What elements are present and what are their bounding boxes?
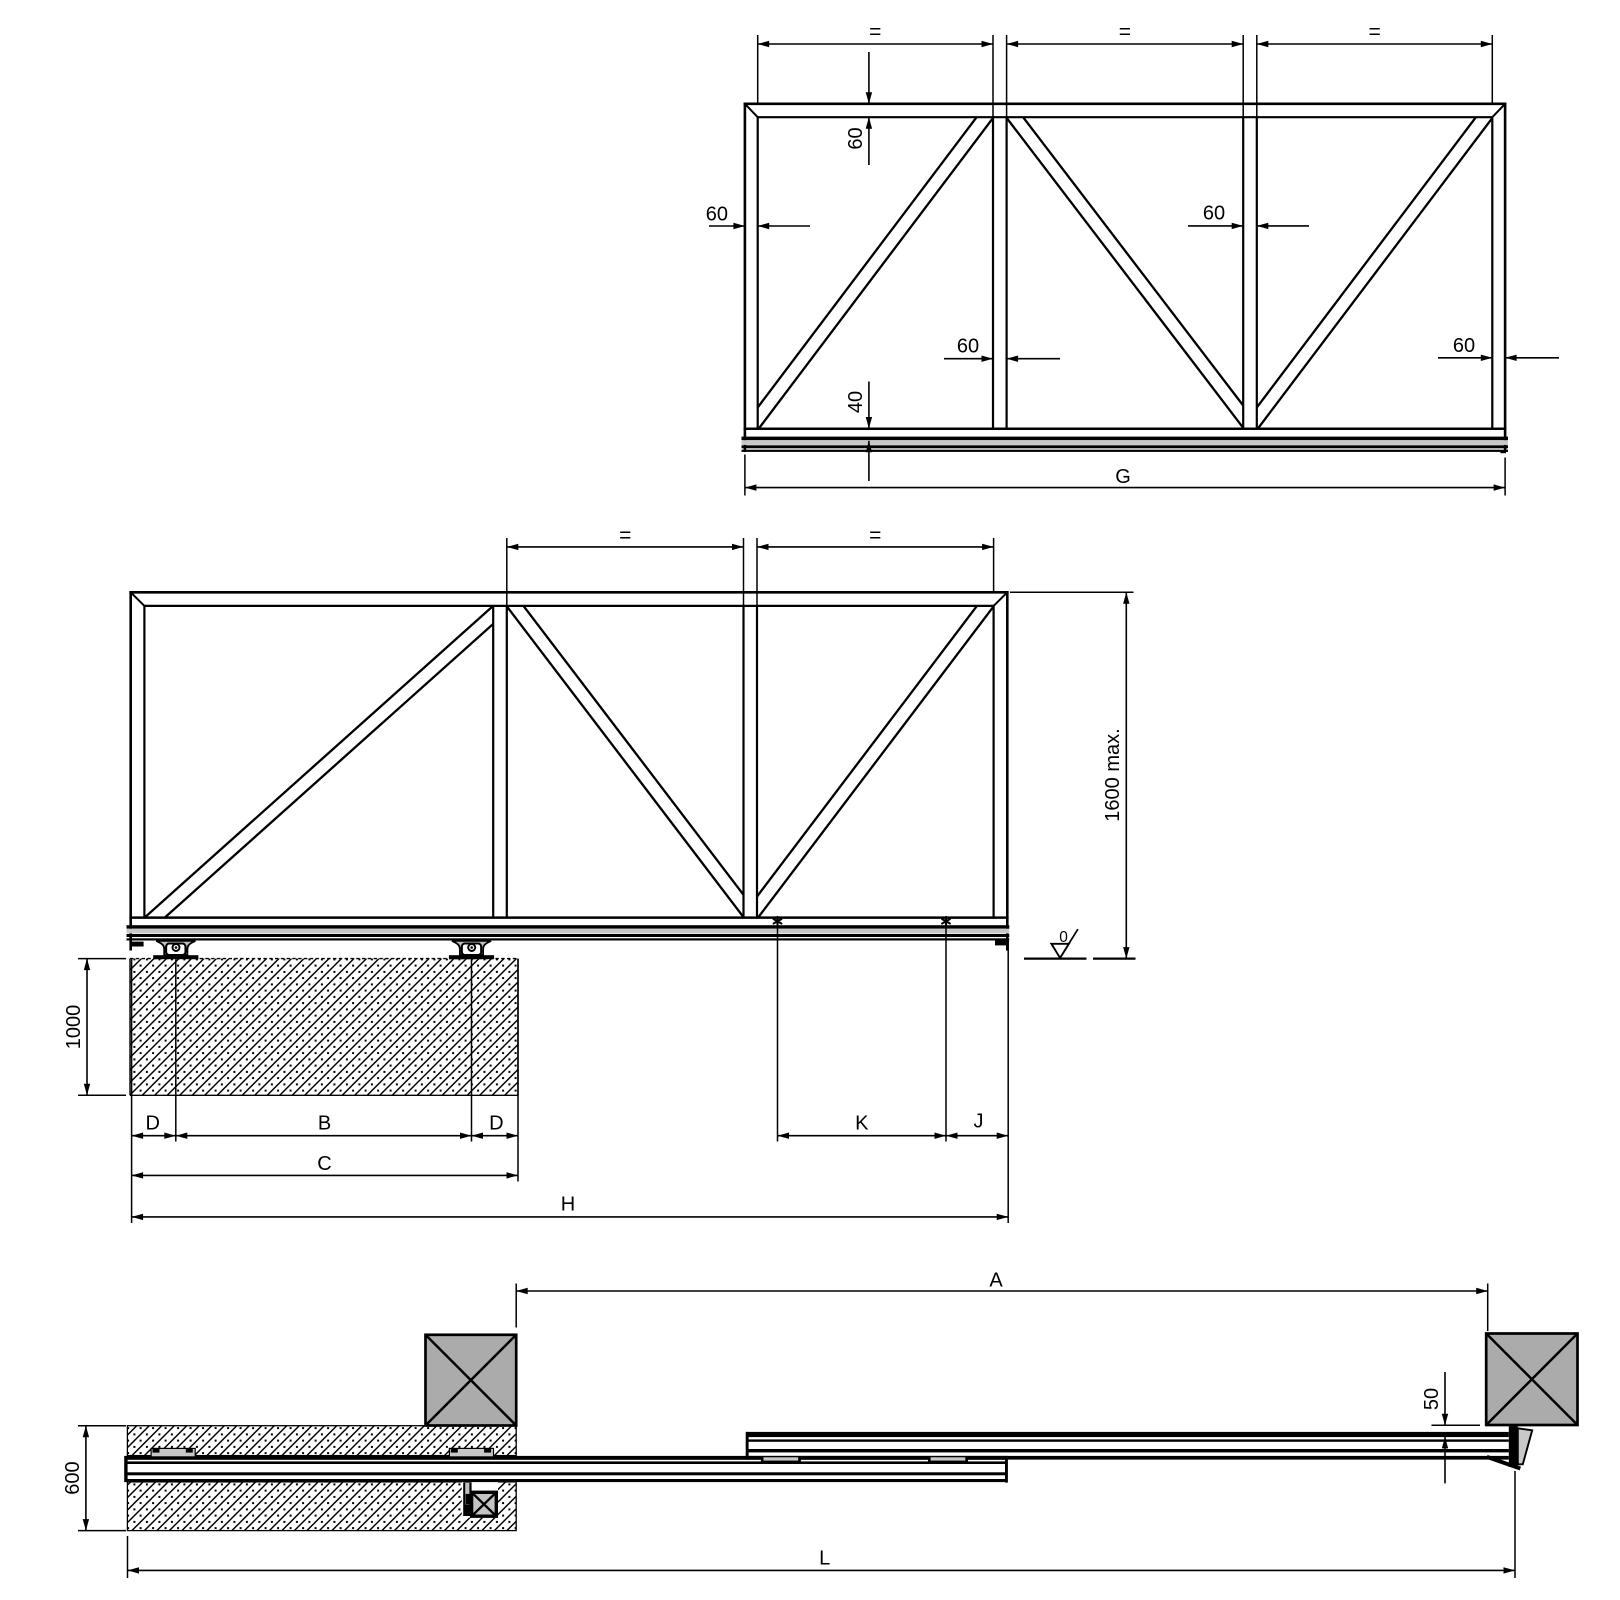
svg-text:G: G: [1115, 466, 1131, 488]
svg-text:1000: 1000: [63, 1005, 85, 1050]
svg-text:=: =: [1368, 21, 1380, 44]
svg-text:=: =: [1119, 21, 1131, 44]
svg-text:B: B: [318, 1113, 331, 1135]
svg-text:0: 0: [1059, 929, 1068, 946]
svg-text:A: A: [989, 1270, 1003, 1292]
svg-text:1600 max.: 1600 max.: [1102, 728, 1124, 821]
svg-text:J: J: [974, 1111, 984, 1133]
svg-text:60: 60: [1203, 202, 1225, 224]
svg-text:60: 60: [1453, 335, 1475, 357]
svg-text:600: 600: [62, 1461, 84, 1494]
svg-text:=: =: [619, 524, 631, 547]
svg-text:D: D: [489, 1113, 503, 1135]
svg-text:C: C: [317, 1153, 331, 1175]
svg-text:H: H: [561, 1194, 575, 1216]
svg-text:D: D: [145, 1113, 159, 1135]
svg-text:50: 50: [1421, 1388, 1443, 1410]
svg-text:=: =: [869, 21, 881, 44]
svg-text:L: L: [819, 1548, 830, 1570]
svg-text:60: 60: [957, 335, 979, 357]
svg-text:40: 40: [845, 391, 867, 413]
svg-text:60: 60: [845, 127, 867, 149]
svg-text:K: K: [855, 1113, 869, 1135]
svg-text:=: =: [869, 524, 881, 547]
svg-text:60: 60: [706, 204, 728, 226]
